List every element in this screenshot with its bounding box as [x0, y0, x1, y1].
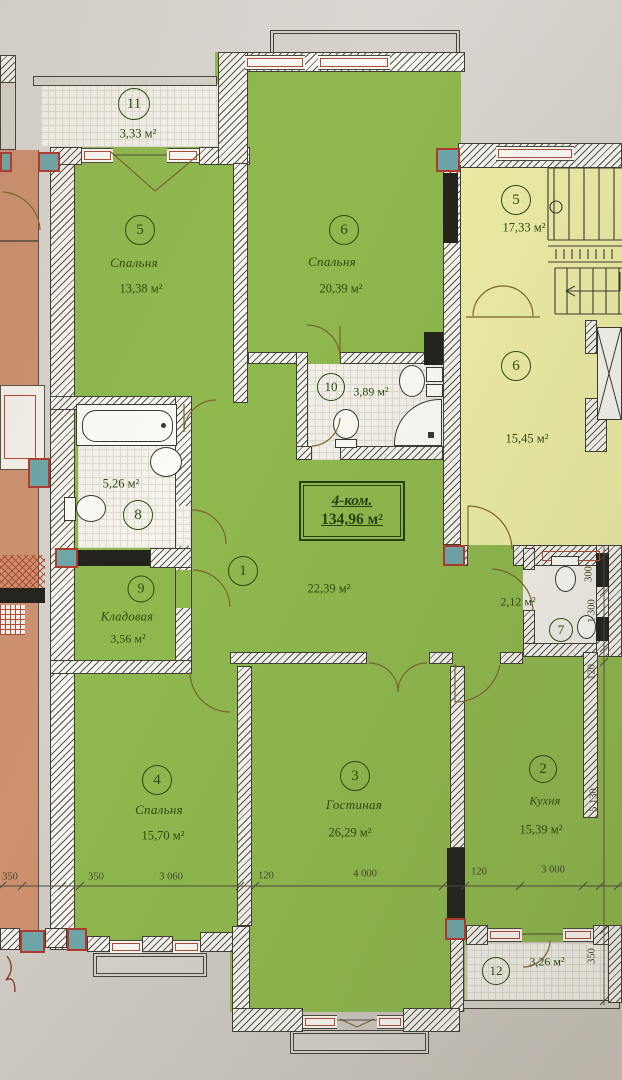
room-4-number: 4 [142, 765, 172, 795]
dim-bottom-120-right: 120 [471, 867, 487, 878]
adjacent-tile-grid [0, 605, 25, 635]
balcony-11-top-edge [33, 76, 217, 86]
dim-right-5130: 5 130 [589, 788, 600, 812]
window [318, 55, 390, 70]
wall-segment [296, 352, 308, 450]
common-hall-number: 6 [501, 351, 531, 381]
window [488, 928, 522, 942]
sink [399, 365, 425, 397]
column [55, 548, 78, 568]
room-1-number: 1 [228, 556, 258, 586]
room-7-area: 2,12 м² [500, 595, 535, 610]
room-11-number: 11 [118, 88, 150, 120]
window [245, 55, 305, 70]
column [436, 148, 460, 172]
shower-drain [428, 432, 434, 438]
room-8-number: 8 [123, 500, 153, 530]
dim-right-300: 300 [584, 566, 595, 582]
wall-segment [500, 652, 523, 664]
signature-mark [6, 956, 15, 992]
wall-segment [608, 545, 622, 657]
toilet-tank [64, 497, 76, 521]
wall-fill [424, 332, 443, 365]
room-3-lower-floor [230, 942, 465, 1012]
room-10-area: 3,89 м² [353, 385, 388, 400]
room-5-floor [50, 147, 233, 410]
wall-fill [0, 588, 45, 603]
bathtub-inner [82, 410, 173, 442]
wall-segment [585, 320, 597, 354]
wall-segment [237, 666, 252, 926]
room-2-number: 2 [529, 755, 557, 783]
column [445, 918, 466, 940]
toilet [76, 495, 106, 522]
adjacent-balcony-edge [0, 80, 16, 150]
wall-segment [0, 55, 16, 83]
washing-machine [426, 384, 443, 397]
stairwell-number: 5 [501, 185, 531, 215]
apartment-summary-inner-border [303, 485, 401, 537]
room-7-number: 7 [549, 618, 573, 642]
dim-right-120: 120 [587, 664, 598, 680]
room-6-name: Спальня [308, 254, 356, 270]
room-5-area: 13,38 м² [120, 282, 163, 297]
toilet [555, 566, 576, 592]
toilet-tank [551, 556, 579, 566]
room-10-number: 10 [317, 373, 345, 401]
bathtub [76, 404, 177, 446]
adjacent-hatch-red [0, 555, 45, 588]
window [173, 940, 200, 954]
common-hall-area: 15,45 м² [506, 432, 549, 447]
stairwell-area: 17,33 м² [503, 221, 546, 236]
wall-fill [596, 617, 609, 641]
wall-segment [466, 925, 488, 945]
wall-segment [142, 936, 173, 952]
floor-plan: 11 3,33 м² 5 Спальня 13,38 м² 6 Спальня … [0, 0, 622, 1080]
column [67, 928, 87, 951]
adjacent-wall-line [0, 240, 38, 242]
door-gap [312, 446, 340, 460]
window [496, 146, 574, 161]
sink [150, 447, 182, 477]
wall-segment [233, 163, 248, 403]
room-4-area: 15,70 м² [142, 829, 185, 844]
dim-bottom-3060: 3 060 [159, 872, 183, 883]
door-gap [308, 352, 340, 364]
wall-fill [78, 550, 150, 566]
wall-segment [523, 548, 535, 570]
room-8-area: 5,26 м² [103, 477, 140, 492]
room-4-name: Спальня [135, 802, 183, 818]
common-area-floor [443, 160, 622, 550]
dim-bottom-350: 350 [88, 872, 104, 883]
room-3-number: 3 [340, 761, 370, 791]
room-5-number: 5 [125, 215, 155, 245]
dim-right-350: 350 [587, 948, 598, 964]
wall-fill [443, 173, 458, 243]
room-2-name: Кухня [530, 794, 561, 809]
adjacent-apartment-strip [0, 150, 39, 940]
wall-segment [340, 446, 443, 460]
toilet-tank [335, 439, 357, 448]
toilet [333, 409, 359, 439]
elevator-shaft [597, 327, 622, 420]
wall-segment [403, 1008, 460, 1032]
balcony-outline-room4 [93, 953, 207, 977]
column [28, 458, 50, 488]
wall-segment [87, 936, 110, 952]
room-9-number: 9 [128, 576, 155, 603]
column [38, 152, 60, 172]
room-12-area: 3,26 м² [529, 955, 564, 970]
room-12-number: 12 [482, 957, 510, 985]
wall-segment [50, 660, 192, 674]
column [0, 152, 12, 172]
balcony-outline-room3 [290, 1030, 429, 1054]
wall-segment [230, 652, 367, 664]
bathtub-tap [161, 423, 166, 428]
door-gap [176, 506, 191, 546]
room-3-name: Гостиная [326, 797, 382, 813]
room-6-area: 20,39 м² [320, 282, 363, 297]
wall-segment [218, 52, 248, 165]
dim-bottom-3000: 3 000 [541, 865, 565, 876]
room-9-name: Кладовая [101, 610, 154, 625]
dim-right-1300: 1 300 [587, 599, 598, 623]
washing-machine [426, 367, 443, 382]
room-2-area: 15,39 м² [520, 823, 563, 838]
wall-segment [150, 548, 192, 568]
dim-bottom-350-left: 350 [2, 872, 18, 883]
dim-bottom-4000: 4 000 [353, 869, 377, 880]
wall-segment [450, 938, 464, 1012]
wall-segment [232, 926, 250, 1012]
room-9-area: 3,56 м² [110, 632, 145, 647]
room-1-area: 22,39 м² [308, 582, 351, 597]
dim-bottom-120-left: 120 [258, 871, 274, 882]
room-11-area: 3,33 м² [120, 127, 157, 142]
entrance-gap-floor [461, 545, 513, 566]
adjacent-bathtub [4, 395, 36, 459]
room-5-name: Спальня [110, 255, 158, 271]
apartment-summary-box: 4-ком. 134,96 м² [299, 481, 405, 541]
wall-segment [45, 928, 67, 948]
wall-fill [447, 848, 465, 918]
column [443, 545, 465, 566]
wall-segment [0, 928, 20, 950]
wall-segment [340, 352, 426, 364]
wall-segment [608, 925, 622, 1003]
balcony-12-bottom-edge [455, 1000, 620, 1009]
window [303, 1015, 337, 1029]
wall-segment [232, 1008, 303, 1032]
room-3-area: 26,29 м² [329, 826, 372, 841]
wall-segment [429, 652, 453, 664]
door-gap [176, 570, 191, 608]
column [20, 930, 45, 953]
window [563, 928, 593, 942]
window [377, 1015, 403, 1029]
wall-segment [296, 446, 312, 460]
wall-segment [450, 666, 465, 848]
room-6-number: 6 [329, 215, 359, 245]
window [167, 148, 199, 163]
window [82, 148, 113, 163]
window [110, 940, 142, 954]
